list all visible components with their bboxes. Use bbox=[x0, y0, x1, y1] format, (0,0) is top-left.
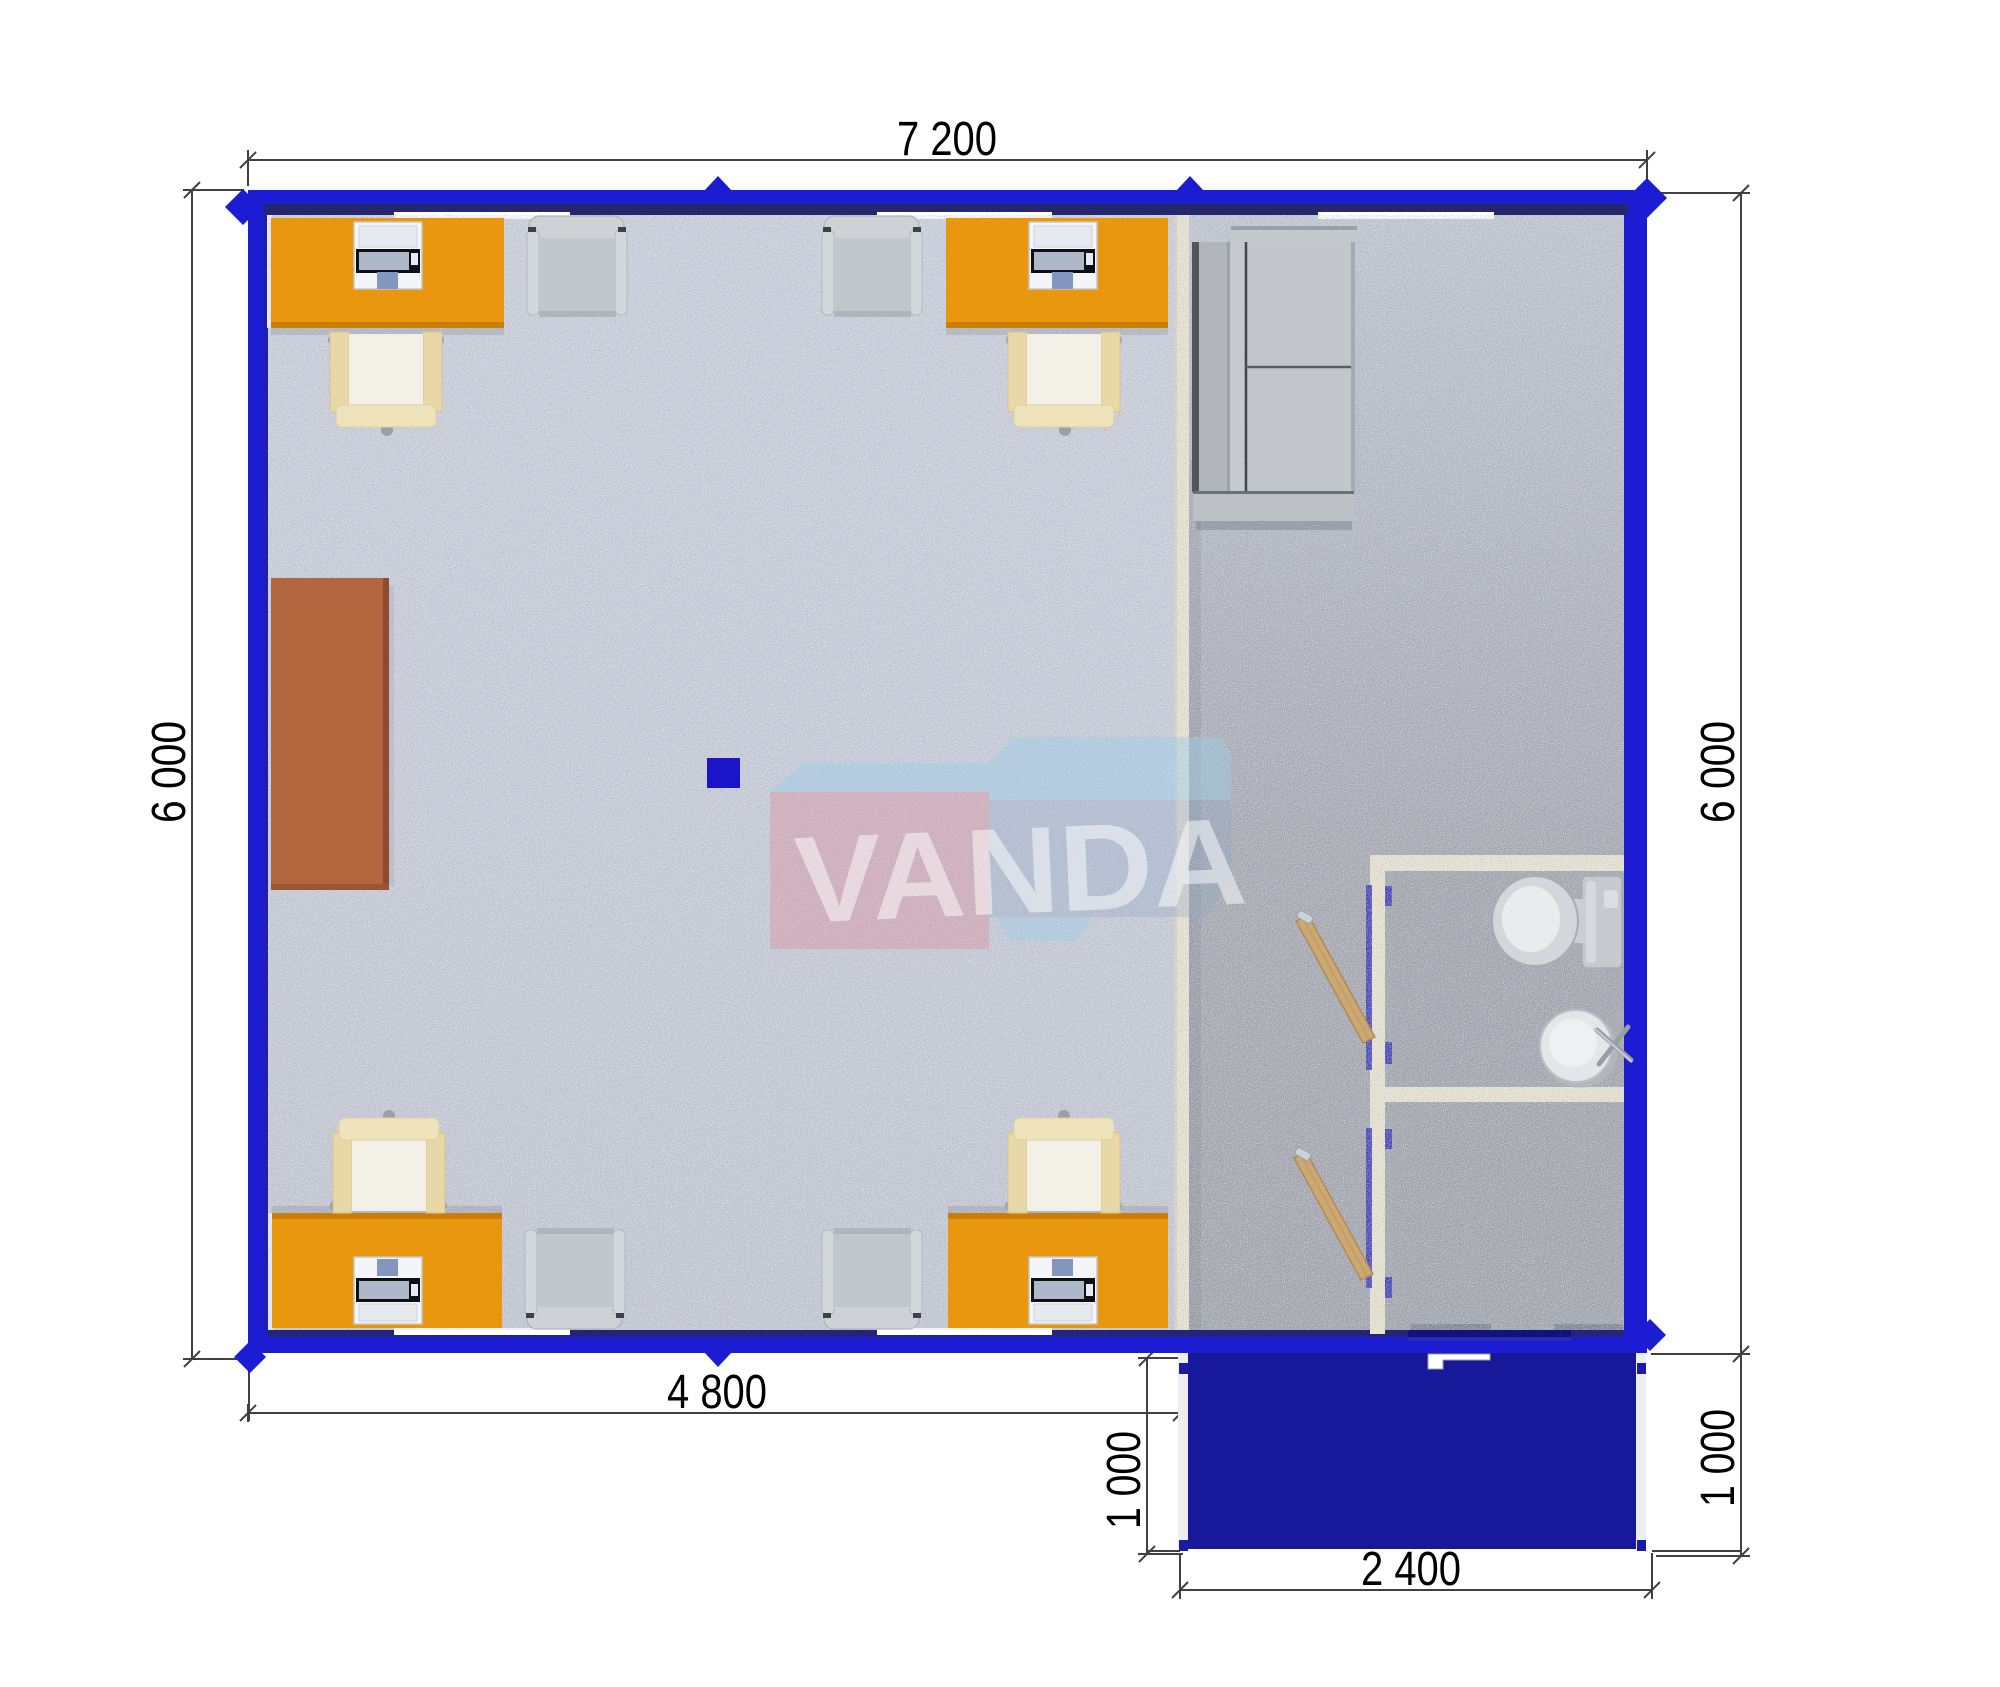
svg-text:4 800: 4 800 bbox=[667, 1366, 767, 1419]
svg-text:1 000: 1 000 bbox=[1692, 1409, 1745, 1507]
svg-text:6 000: 6 000 bbox=[143, 721, 196, 823]
svg-text:7 200: 7 200 bbox=[897, 113, 997, 166]
svg-text:2 400: 2 400 bbox=[1361, 1543, 1461, 1596]
svg-text:1 000: 1 000 bbox=[1098, 1431, 1151, 1529]
svg-text:VANDA: VANDA bbox=[792, 793, 1250, 950]
svg-text:6 000: 6 000 bbox=[1692, 721, 1745, 823]
